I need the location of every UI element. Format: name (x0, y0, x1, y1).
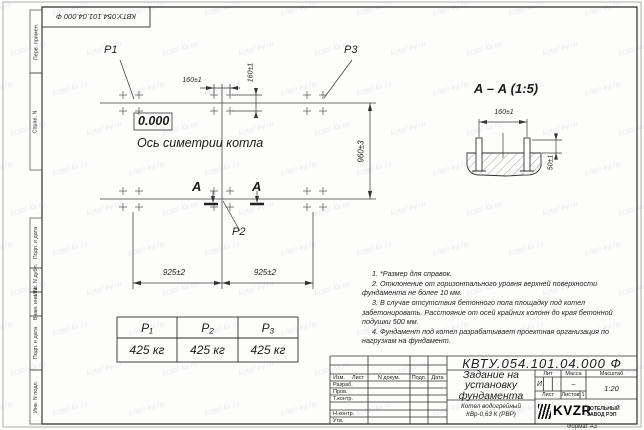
dim-925-right: 925±2 (243, 268, 287, 277)
loads-table-header-p1: P₁ (117, 317, 177, 338)
row-label-nkontr: Н.контр. (333, 411, 354, 417)
sheets-label: Листов (561, 391, 580, 399)
plan-view-lines (100, 60, 376, 289)
side-label-podp-data-1: Подп. и дата (30, 218, 42, 268)
side-label-vzam-inv: Взам. инв. N (30, 292, 42, 316)
spring-logo-icon (538, 404, 551, 419)
scale-value: 1:20 (586, 377, 637, 399)
logo-subtitle-2: ЗАВОД РЭП (587, 412, 617, 418)
product-name-line1: Котел водогрейный (449, 403, 533, 410)
doc-title: Задание на установку фундамента (451, 371, 531, 400)
row-label-prov: Пров. (333, 389, 348, 395)
row-label-tkontr: Т.контр. (333, 396, 353, 402)
side-label-sprav-n: Справ. N (30, 73, 42, 170)
row-label-utv: Утв. (333, 418, 343, 424)
col-header-data: Дата (428, 374, 447, 381)
side-label-inv-podl: Инв. N подл. (30, 370, 42, 424)
note-2: 2. Отклонение от горизонтального уровня … (362, 279, 634, 298)
anchor-bolt-crosses (119, 91, 327, 211)
col-header-dokum: N докум. (368, 374, 410, 381)
row-label-razrab: Разраб. (333, 382, 353, 388)
section-mark-right: А (252, 179, 261, 194)
elevation-mark: 0.000 (138, 114, 169, 128)
notes-block: 1. *Размер для справок. 2. Отклонение от… (362, 269, 634, 346)
boiler-axis-label: Ось симетрии котла (137, 136, 263, 150)
mass-header: Масса (561, 370, 586, 377)
note-1: 1. *Размер для справок. (362, 269, 634, 279)
load-label-p2: P2 (232, 226, 245, 238)
loads-table-header-p3: P₃ (238, 317, 298, 338)
anchor-bolt-right (524, 138, 530, 171)
col-header-izm: Изм. (330, 374, 348, 381)
dim-160-horizontal: 160±1 (176, 77, 208, 84)
logo-text: KVZR (553, 403, 592, 418)
sheets-value: 1 (580, 391, 586, 399)
lit-header: Лит (535, 370, 561, 377)
title-designation: КВТУ.054.101.04.000 Ф (447, 356, 637, 370)
drawing-sheet: kotel-kv.rukotel-kv.rukotel-kv.rukotel-k… (0, 0, 644, 430)
side-label-perv-primen: Перв. примен. (30, 10, 42, 73)
loads-table-value-p2: 425 кг (177, 338, 238, 362)
scale-header: Масштаб (586, 370, 637, 377)
lit-value: И (535, 377, 544, 391)
loads-table-header-p2: P₂ (177, 317, 238, 338)
stamp-designation-rotated: КВТУ.054.101.04.000 Ф (42, 7, 150, 27)
sheet-label: Лист (535, 391, 561, 399)
section-dim-width: 160±1 (486, 109, 522, 116)
section-mark-left: А (192, 179, 201, 194)
stamp-text: КВТУ.054.101.04.000 Ф (56, 13, 136, 22)
section-dim-height: 50±1 (548, 150, 555, 176)
col-header-list: Лист (348, 374, 368, 381)
product-name-line2: КВр-0,63 К (РВР) (449, 411, 533, 418)
note-3: 3. В случае отсутствия бетонного пола пл… (362, 298, 634, 327)
note-4: 4. Фундамент под котел разрабатывает про… (362, 327, 634, 346)
loads-table-value-p1: 425 кг (117, 338, 177, 362)
col-header-podp: Подп. (410, 374, 428, 381)
load-label-p1: P1 (104, 44, 117, 56)
mass-value: – (561, 377, 586, 391)
section-view-title: А – А (1:5) (460, 81, 552, 96)
side-label-podp-data-2: Подп. и дата (30, 316, 42, 370)
load-label-p3: P3 (344, 44, 357, 56)
format-label: Формат А3 (552, 424, 612, 430)
dim-160-vertical: 160±1 (248, 58, 255, 88)
dim-925-left: 925±2 (152, 268, 196, 277)
anchor-bolt-left (476, 138, 482, 171)
dim-960: 960±3 (357, 135, 366, 169)
loads-table-value-p3: 425 кг (238, 338, 298, 362)
